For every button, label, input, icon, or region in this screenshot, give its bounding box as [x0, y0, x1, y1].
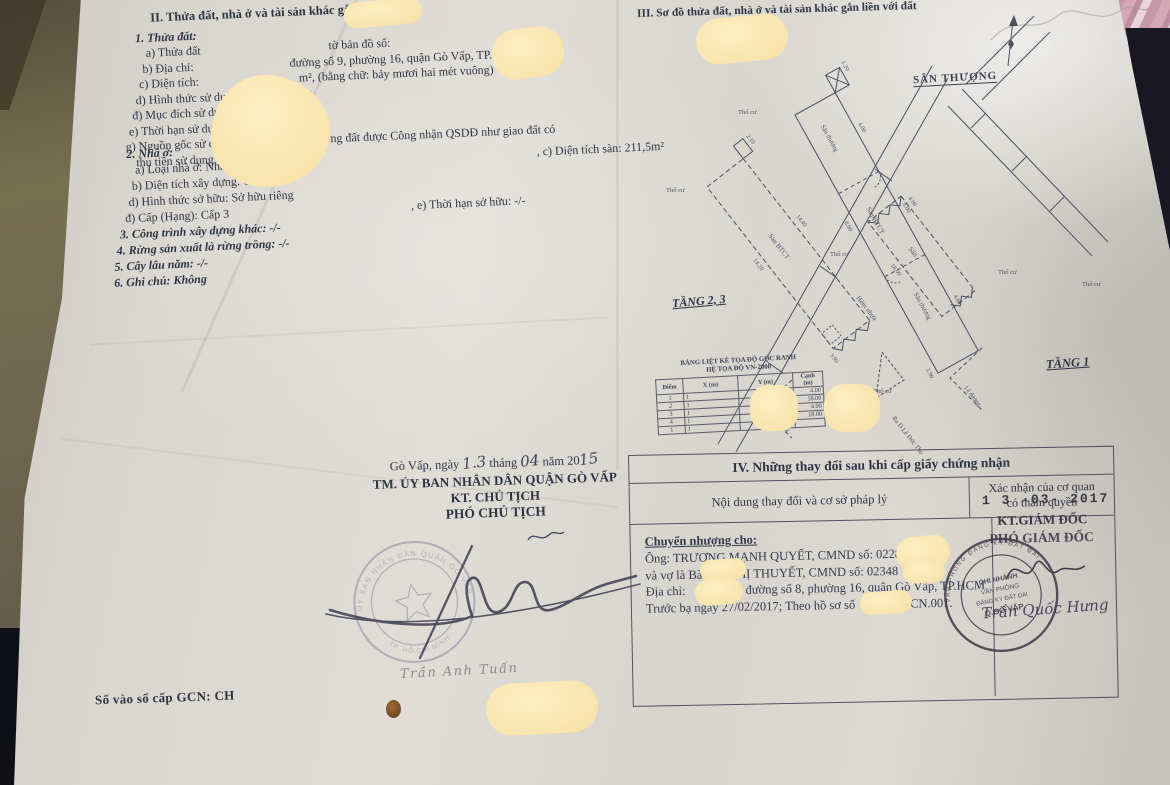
- dim-label: 14.20: [751, 258, 764, 272]
- issue-month-handwritten: 04: [519, 451, 540, 471]
- land-use-label: Thổ cư: [998, 269, 1017, 276]
- dim-label: 3.90: [828, 353, 839, 365]
- redaction-blob: [485, 679, 600, 737]
- coordinate-table: BẢNG LIỆT KÊ TỌA ĐỘ GÓC RANH HỆ TỌA ĐỘ V…: [654, 353, 826, 436]
- dim-label: 2.10: [744, 134, 755, 146]
- issue-block: Gò Vấp, ngày 1.3 tháng 04 năm 2015 TM. Ủ…: [336, 448, 654, 526]
- curb-label: Lề đường: [962, 385, 982, 408]
- cell: [795, 418, 825, 428]
- floor23-plan: Sàn BTCT 14.20 14.40 3.90 2.10: [688, 134, 893, 366]
- dim-label: 18.00: [889, 263, 902, 277]
- changes-col-content: Nội dung thay đổi và cơ sở pháp lý: [630, 477, 971, 524]
- redaction-blob: [859, 589, 912, 616]
- floor23-slab-label: Sàn BTCT: [766, 232, 791, 261]
- address-label: b) Địa chỉ:: [142, 59, 194, 75]
- land-use-label: Thổ cư: [738, 109, 757, 116]
- transfer-address-label: Địa chỉ:: [646, 584, 686, 599]
- rooftop-room-label: Sân thượng: [819, 124, 840, 154]
- redaction-blob: [750, 385, 798, 431]
- issue-month-label: tháng: [489, 455, 517, 470]
- dim-label: 8.00: [843, 221, 853, 233]
- map-sheet-label: tờ bản đồ số:: [328, 36, 391, 53]
- photo-stage: II. Thửa đất, nhà ở và tài sản khác gắn …: [0, 0, 1170, 785]
- paper-stain: [386, 700, 401, 718]
- section-house: 2. Nhà ở: a) Loại nhà ở: Nhà ở riêng lẻ,…: [108, 122, 674, 291]
- parcel-number-label: a) Thửa đất: [145, 44, 200, 60]
- yard-label: Sân: [907, 245, 920, 259]
- cell: 1: [658, 425, 685, 434]
- alley-label: Hẻm nhựa: [854, 294, 879, 323]
- dim-label: 2.90: [924, 368, 934, 380]
- area-label: c) Diện tích:: [139, 75, 200, 91]
- date-received-stamp: 1 3 -03- 2017: [982, 491, 1110, 508]
- land-use-label: Thổ cư: [830, 251, 849, 258]
- issue-year-handwritten: 15: [578, 449, 599, 469]
- rooftop-plan: Sân thượng Sàn BTCT Sân thượng 1.20 4.00…: [774, 60, 1000, 380]
- redaction-blob: [694, 577, 744, 606]
- col-edge: Cạnh (m): [792, 371, 823, 388]
- coordinate-grid: Điểm X (m) Y (m) Cạnh (m) 114.00 2118.00…: [655, 371, 826, 436]
- redaction-blob: [902, 560, 945, 585]
- dim-label: 14.40: [794, 214, 807, 228]
- side-street-lines: [948, 16, 1108, 256]
- rooftop-room-label: Sân thượng: [912, 292, 933, 322]
- registration-date: Trước bạ ngày 27/02/2017; Theo hồ sơ số: [646, 598, 855, 616]
- issue-place: Gò Vấp, ngày: [390, 457, 460, 473]
- redaction-blob: [824, 384, 880, 432]
- land-use-label: Thổ cư: [1082, 281, 1101, 288]
- chairman-signature: [322, 538, 658, 670]
- land-use-label: Thổ cư: [666, 187, 685, 194]
- dim-label: 4.00: [856, 122, 866, 134]
- issue-year-label: năm 20: [542, 453, 580, 468]
- issue-day-handwritten: 1.3: [461, 452, 487, 473]
- col-point: Điểm: [656, 378, 684, 394]
